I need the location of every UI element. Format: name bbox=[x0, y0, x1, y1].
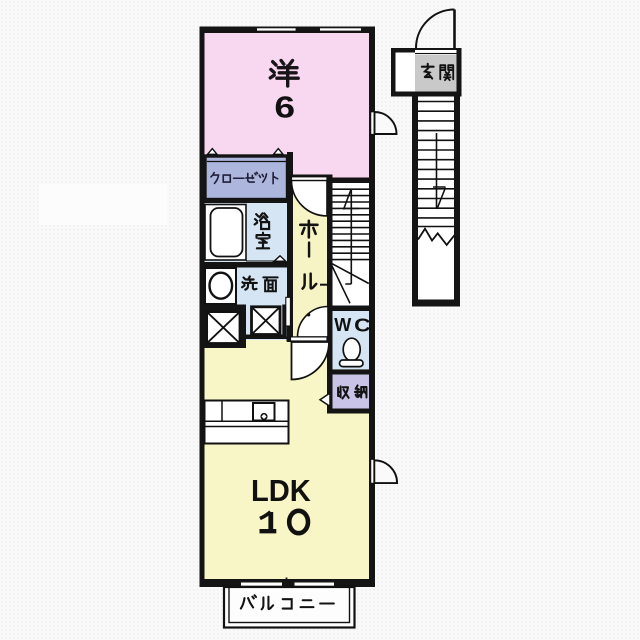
svg-text:C: C bbox=[354, 316, 371, 336]
svg-text:6: 6 bbox=[274, 90, 295, 124]
svg-text:LDK: LDK bbox=[251, 474, 311, 508]
svg-text:W: W bbox=[334, 315, 351, 335]
